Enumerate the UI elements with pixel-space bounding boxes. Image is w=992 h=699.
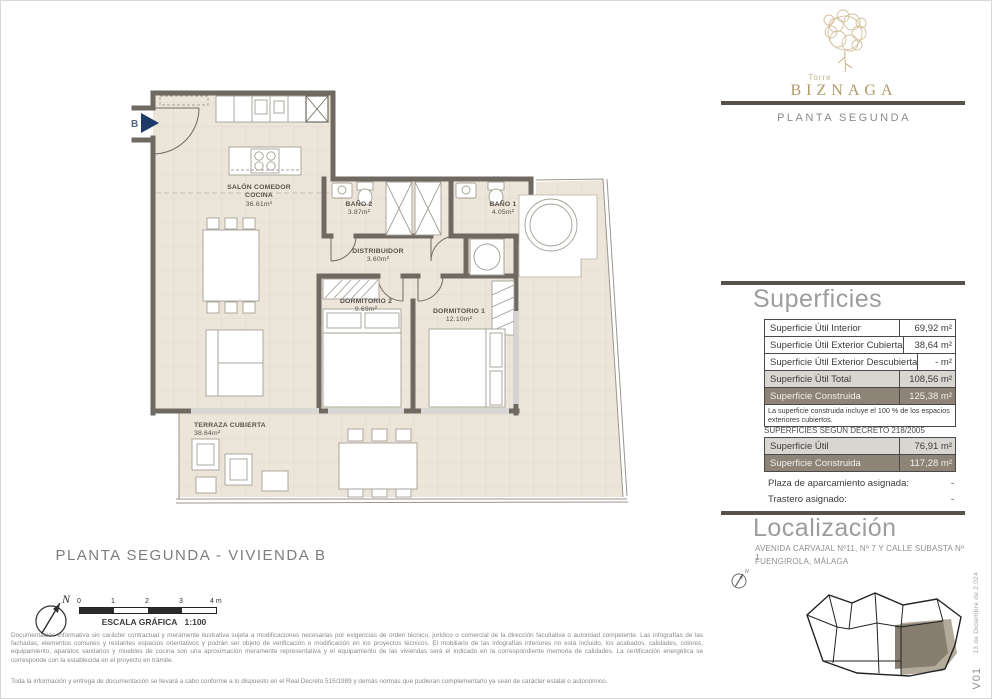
- bed-dorm2: [323, 309, 401, 407]
- room-area-dormitorio1: 12.10m²: [446, 316, 473, 323]
- table-row: Superficie Útil Exterior Descubierta - m…: [764, 354, 956, 371]
- svg-text:N: N: [745, 569, 749, 575]
- north-indicator-small-icon: N: [727, 565, 753, 593]
- scale-tick: 3: [179, 598, 183, 605]
- room-area-bano2: 3.87m²: [348, 209, 371, 216]
- room-label-salon-2: COCINA: [245, 192, 273, 199]
- version-code: V01: [971, 667, 983, 690]
- room-label-terraza: TERRAZA CUBIERTA: [194, 422, 266, 429]
- site-key-plan: [797, 583, 969, 687]
- room-label-dormitorio2: DORMITORIO 2: [340, 298, 392, 305]
- row-label: Superficie Útil Interior: [765, 323, 899, 334]
- logo-brand: BIZNAGA: [719, 82, 969, 100]
- divider: [721, 101, 965, 105]
- row-label: Superficie Útil Exterior Cubierta: [765, 340, 903, 351]
- room-label-distribuidor: DISTRIBUIDOR: [352, 248, 404, 255]
- extra-label: Plaza de aparcamiento asignada:: [768, 478, 909, 489]
- kitchen-island: [229, 147, 301, 175]
- decreto-table: Superficie Útil 76,91 m² Superficie Cons…: [764, 437, 956, 472]
- decreto-title: SUPERFICIES SEGUN DECRETO 218/2005: [764, 426, 925, 435]
- table-row-construida: Superficie Construida 125,38 m²: [764, 388, 956, 405]
- table-row: Superficie Útil 76,91 m²: [764, 437, 956, 455]
- row-value: 108,56 m²: [899, 371, 955, 387]
- extra-value: -: [951, 478, 954, 489]
- scale-tick: 1: [111, 598, 115, 605]
- floor-label: PLANTA SEGUNDA: [719, 112, 969, 124]
- extra-label: Trastero asignado:: [768, 494, 847, 505]
- version-date: 13 de Diciembre de 2.024: [973, 572, 980, 654]
- scale-bar: [79, 607, 217, 614]
- row-label: Superficie Útil Exterior Descubierta: [765, 357, 917, 368]
- room-label-dormitorio1: DORMITORIO 1: [433, 308, 485, 315]
- room-area-terraza: 38.64m²: [194, 430, 221, 437]
- localizacion-heading: Localización: [753, 514, 897, 543]
- parking-row: Plaza de aparcamiento asignada: -: [768, 478, 954, 489]
- biznaga-tree-logo-icon: [805, 7, 885, 73]
- superficies-table: Superficie Útil Interior 69,92 m² Superf…: [764, 319, 956, 427]
- row-value: 125,38 m²: [899, 388, 955, 404]
- table-row: Superficie Útil Interior 69,92 m²: [764, 319, 956, 337]
- water-heater: [470, 239, 504, 275]
- plan-sheet: B: [0, 0, 992, 699]
- row-label: Superficie Construida: [765, 391, 899, 402]
- table-row: Superficie Construida 117,28 m²: [764, 455, 956, 472]
- storage-row: Trastero asignado: -: [768, 494, 954, 505]
- extra-value: -: [951, 494, 954, 505]
- sofa: [206, 330, 263, 396]
- floor-plan: B: [126, 79, 666, 519]
- room-label-bano1: BAÑO 1: [490, 199, 517, 208]
- wardrobe-dorm1: [492, 281, 514, 335]
- room-label-salon: SALÓN COMEDOR: [227, 182, 291, 191]
- superficies-heading: Superficies: [753, 285, 882, 314]
- svg-text:N: N: [61, 592, 71, 606]
- disclaimer-paragraph: Documentación informativa sin carácter c…: [11, 632, 703, 665]
- row-value: 117,28 m²: [899, 455, 955, 471]
- entry-label: B: [131, 119, 138, 130]
- plan-title: PLANTA SEGUNDA - VIVIENDA B: [41, 547, 341, 564]
- scale-label-text: ESCALA GRÁFICA: [102, 617, 178, 627]
- scale-tick: 4 m: [210, 598, 222, 605]
- dining-table: [203, 218, 259, 313]
- table-row: Superficie Útil Exterior Cubierta 38,64 …: [764, 337, 956, 354]
- room-area-salon: 36.61m²: [246, 201, 273, 208]
- room-area-bano1: 4.05m²: [492, 209, 515, 216]
- ventilation-shaft: [306, 96, 328, 122]
- row-label: Superficie Útil: [765, 441, 899, 452]
- address-line2: FUENGIROLA, MÁLAGA: [755, 557, 848, 566]
- scale-ratio: 1:100: [185, 617, 207, 627]
- version-strip: V01 13 de Diciembre de 2.024: [968, 572, 986, 690]
- scale-tick: 0: [77, 598, 81, 605]
- room-area-distribuidor: 3.60m²: [367, 256, 390, 263]
- room-area-dormitorio2: 9.69m²: [355, 306, 378, 313]
- row-value: 76,91 m²: [899, 438, 955, 454]
- table-row-total: Superficie Útil Total 108,56 m²: [764, 371, 956, 388]
- row-label: Superficie Construida: [765, 458, 899, 469]
- bed-dorm1: [429, 329, 505, 407]
- scale-label: ESCALA GRÁFICA 1:100: [79, 617, 229, 627]
- wardrobe-dorm2: [323, 279, 379, 299]
- row-label: Superficie Útil Total: [765, 374, 899, 385]
- graphic-scale: 0 1 2 3 4 m ESCALA GRÁFICA 1:100: [79, 598, 239, 632]
- sidebar: Torre BIZNAGA PLANTA SEGUNDA Superficies…: [719, 1, 969, 699]
- row-value: - m²: [917, 354, 955, 370]
- row-value: 38,64 m²: [903, 337, 955, 353]
- row-value: 69,92 m²: [899, 320, 955, 336]
- table-note: La superficie construida incluye el 100 …: [764, 405, 956, 427]
- room-label-bano2: BAÑO 2: [346, 199, 373, 208]
- disclaimer-line: Toda la información y entrega de documen…: [11, 678, 731, 685]
- logo-torre: Torre: [695, 73, 945, 82]
- scale-tick: 2: [145, 598, 149, 605]
